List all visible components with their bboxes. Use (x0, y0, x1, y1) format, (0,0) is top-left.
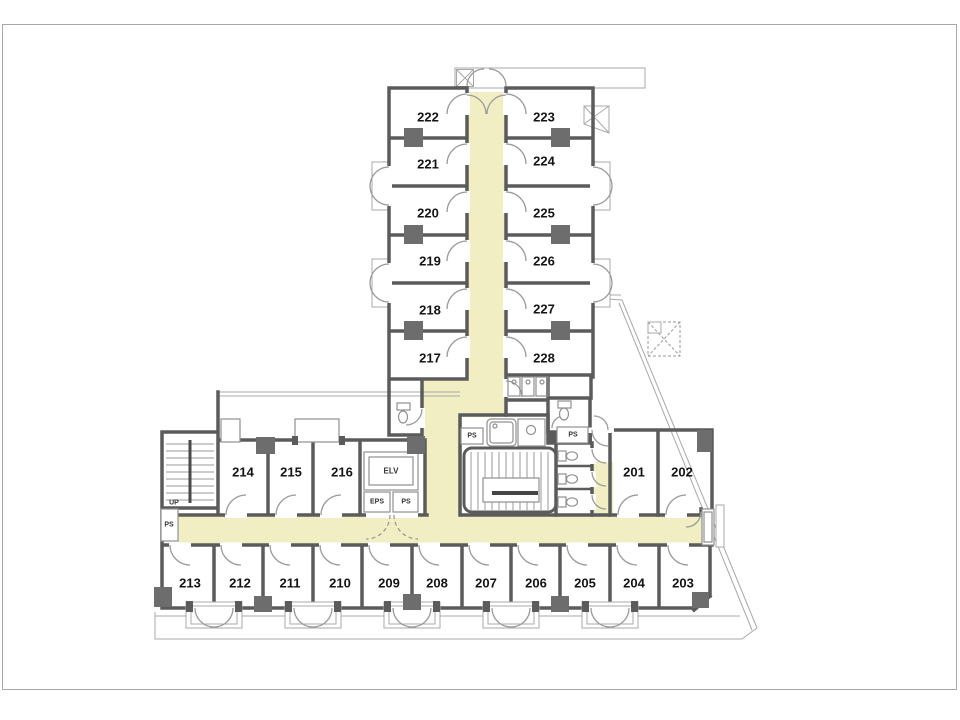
room-label-204: 204 (623, 576, 645, 591)
room-label-214: 214 (232, 465, 254, 480)
room-label-224: 224 (533, 154, 555, 169)
window-unit (221, 419, 240, 442)
room-label-217: 217 (419, 351, 441, 366)
room-label-202: 202 (671, 465, 693, 480)
elevator-label: ELV (384, 467, 400, 476)
room-label-212: 212 (229, 576, 251, 591)
room-label-226: 226 (533, 254, 555, 269)
room-label-228: 228 (533, 351, 555, 366)
balcony-corridor-end (716, 505, 724, 547)
room-label-206: 206 (525, 576, 547, 591)
exterior-lines (155, 68, 757, 639)
window-unit (295, 419, 339, 442)
room-label-205: 205 (574, 576, 596, 591)
room-label-225: 225 (533, 206, 555, 221)
floor-plan-page: 222 221 220 219 218 217 223 224 225 226 … (0, 0, 960, 720)
floor-plan-drawing: 222 221 220 219 218 217 223 224 225 226 … (0, 0, 960, 720)
room-label-201: 201 (623, 465, 645, 480)
room-label-220: 220 (417, 206, 439, 221)
room-label-222: 222 (417, 110, 439, 125)
room-label-218: 218 (419, 303, 441, 318)
room-label-227: 227 (533, 302, 555, 317)
sink-counter (508, 377, 548, 396)
room-label-213: 213 (179, 576, 201, 591)
room-label-207: 207 (475, 576, 497, 591)
room-label-215: 215 (280, 465, 302, 480)
room-label-221: 221 (417, 157, 439, 172)
room-label-223: 223 (533, 110, 555, 125)
room-label-219: 219 (419, 254, 441, 269)
room-label-209: 209 (378, 576, 400, 591)
west-staircase (166, 440, 214, 503)
central-staircase (464, 448, 556, 512)
ps-label-elv: PS (401, 499, 411, 506)
roof-balcony-north (455, 68, 645, 88)
room-label-211: 211 (280, 576, 301, 591)
washstand (518, 419, 545, 446)
ps-label-core-west: PS (467, 433, 477, 440)
room-label-216: 216 (331, 465, 353, 480)
up-label: UP (169, 500, 179, 507)
ps-label-west: PS (164, 522, 174, 529)
room-label-203: 203 (672, 576, 694, 591)
room-label-210: 210 (329, 576, 351, 591)
room-label-208: 208 (426, 576, 448, 591)
ps-label-core-east: PS (568, 432, 578, 439)
eps-label: EPS (370, 499, 384, 506)
